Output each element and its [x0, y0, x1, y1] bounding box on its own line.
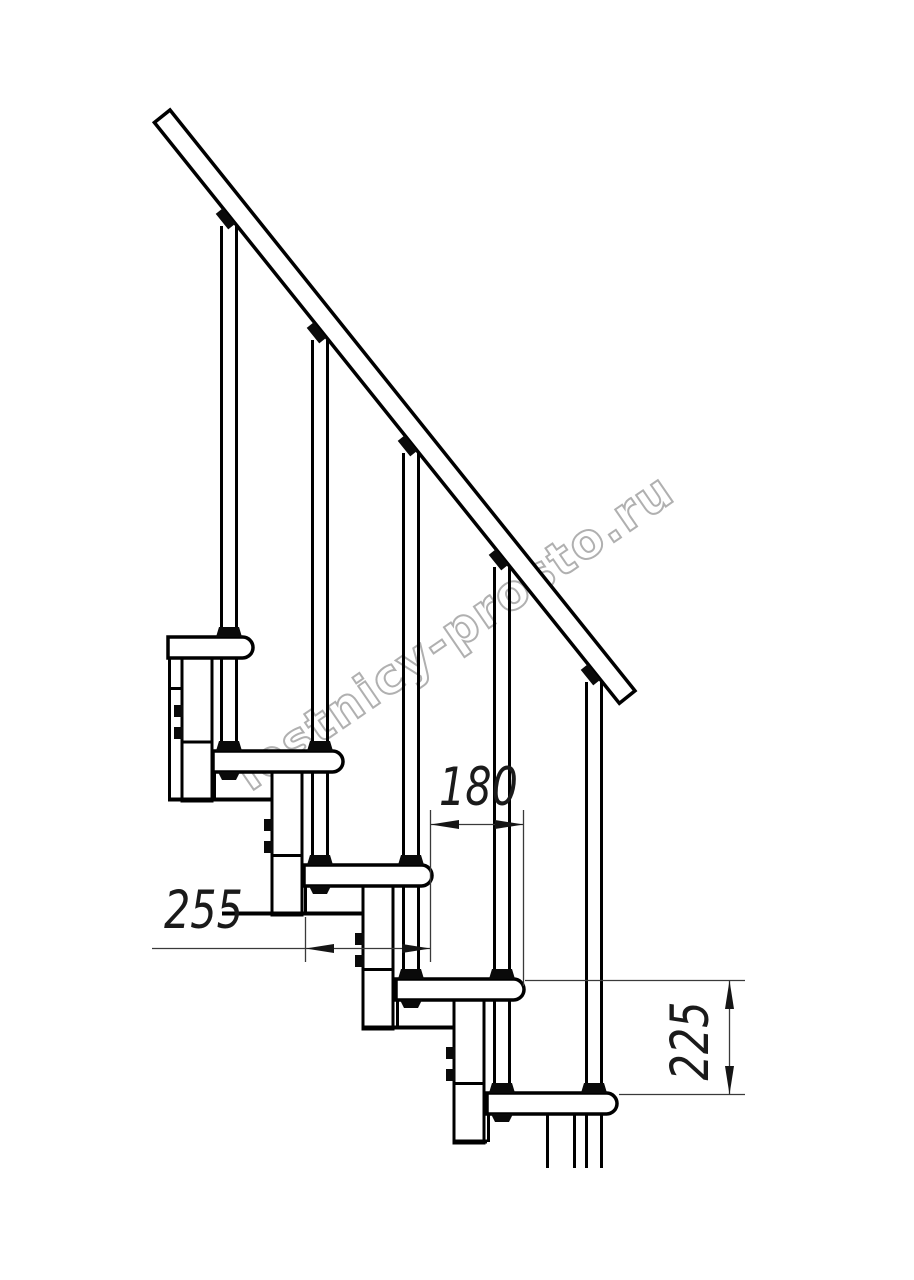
tread-rear-edges	[215, 772, 489, 1142]
tread-2	[213, 751, 343, 772]
baluster-rod-3	[404, 453, 419, 969]
dimension-label-255: 255	[164, 884, 242, 938]
support-column-1	[182, 655, 212, 801]
module1-cut-edge	[168, 637, 182, 801]
baluster-rod-1	[222, 226, 237, 741]
support-column-3	[363, 886, 393, 1029]
handrail-body	[154, 110, 635, 703]
handrail	[154, 110, 635, 703]
handrail-connectors	[216, 208, 601, 685]
tread-4	[396, 979, 524, 1000]
dimension-label-225: 225	[664, 998, 718, 1084]
dimension-label-180: 180	[439, 761, 517, 815]
baluster-rod-2	[313, 340, 328, 855]
staircase-drawing-page: lestnicy-prosto.ru	[0, 0, 914, 1280]
tread-1	[168, 637, 253, 658]
support-column-4	[454, 1000, 484, 1143]
support-column-2	[272, 772, 302, 915]
tread-5	[487, 1093, 617, 1114]
tread-3	[304, 865, 432, 886]
support-column-5	[548, 1114, 575, 1168]
staircase-drawing	[0, 0, 914, 1280]
